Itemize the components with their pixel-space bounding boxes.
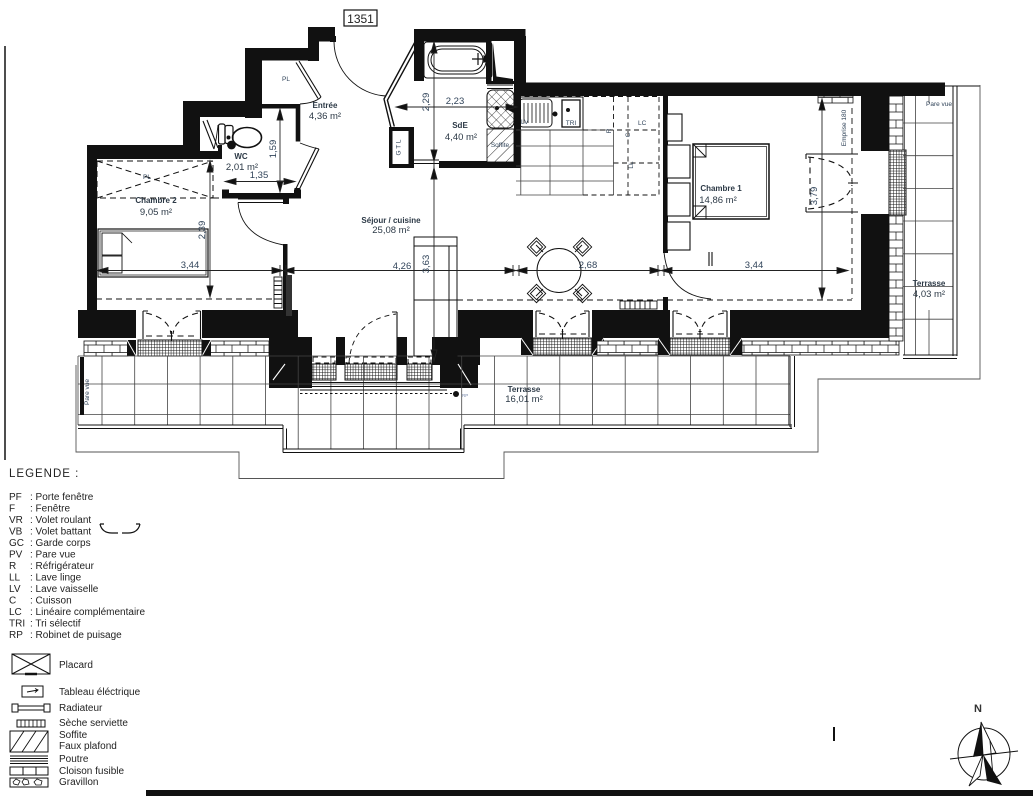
- svg-text:R: R: [9, 561, 16, 572]
- svg-text:Entrée: Entrée: [313, 101, 338, 110]
- svg-text:2,68: 2,68: [579, 260, 598, 271]
- svg-text:TRI: TRI: [566, 120, 577, 127]
- svg-text:PL: PL: [282, 76, 290, 83]
- svg-text:: Volet battant: : Volet battant: [30, 527, 91, 538]
- svg-text:4,36 m²: 4,36 m²: [309, 111, 341, 122]
- svg-text:: Lave vaisselle: : Lave vaisselle: [30, 584, 99, 595]
- svg-text:SdE: SdE: [452, 121, 468, 130]
- svg-text:PV: PV: [9, 550, 23, 561]
- svg-text:2,39: 2,39: [197, 221, 208, 240]
- svg-text:3,63: 3,63: [421, 255, 432, 274]
- svg-text:Faux plafond: Faux plafond: [59, 741, 117, 752]
- svg-text:: Cuisson: : Cuisson: [30, 596, 72, 607]
- svg-text:VR: VR: [9, 515, 23, 526]
- svg-text:WC: WC: [234, 152, 248, 161]
- svg-text:G T L: G T L: [396, 139, 403, 155]
- svg-text:: Lave linge: : Lave linge: [30, 573, 82, 584]
- svg-text:4,40 m²: 4,40 m²: [445, 132, 477, 143]
- svg-text:Terrasse: Terrasse: [508, 385, 541, 394]
- svg-text:LC: LC: [9, 607, 22, 618]
- svg-text:C: C: [9, 596, 16, 607]
- svg-text:PF: PF: [9, 492, 22, 503]
- svg-text:Chambre 1: Chambre 1: [700, 184, 742, 193]
- svg-text:LV: LV: [521, 119, 529, 126]
- svg-text:Soffite: Soffite: [59, 730, 88, 741]
- svg-text:3,44: 3,44: [181, 260, 200, 271]
- svg-text:3,44: 3,44: [745, 260, 764, 271]
- svg-text:LC: LC: [638, 120, 647, 127]
- svg-text:LV: LV: [9, 584, 21, 595]
- svg-text:Chambre 2: Chambre 2: [135, 196, 177, 205]
- svg-text:Gravillon: Gravillon: [59, 777, 98, 788]
- svg-text:3,79: 3,79: [809, 187, 820, 206]
- svg-text:14,86 m²: 14,86 m²: [699, 195, 737, 206]
- svg-text:LEGENDE :: LEGENDE :: [9, 468, 79, 480]
- svg-text:VB: VB: [9, 527, 23, 538]
- svg-text:Pare vue: Pare vue: [84, 379, 91, 405]
- svg-text:1,59: 1,59: [268, 140, 279, 159]
- svg-text:Cloison fusible: Cloison fusible: [59, 766, 124, 777]
- svg-text:Emprise 180: Emprise 180: [841, 109, 848, 146]
- svg-text:: Robinet de puisage: : Robinet de puisage: [30, 630, 122, 641]
- svg-text:RP: RP: [9, 630, 23, 641]
- svg-text:Pare vue: Pare vue: [926, 101, 952, 108]
- svg-text:Terrasse: Terrasse: [913, 279, 946, 288]
- svg-text:2,29: 2,29: [421, 93, 432, 112]
- svg-text:4,26: 4,26: [393, 261, 412, 272]
- svg-text:: Pare vue: : Pare vue: [30, 550, 76, 561]
- svg-text:Placard: Placard: [59, 660, 93, 671]
- svg-text:: Linéaire complémentaire: : Linéaire complémentaire: [30, 607, 145, 618]
- svg-text:4,03 m²: 4,03 m²: [913, 289, 945, 300]
- svg-text:LL: LL: [9, 573, 21, 584]
- svg-text:N: N: [974, 703, 982, 715]
- svg-text:Sèche serviette: Sèche serviette: [59, 718, 128, 729]
- svg-text:C: C: [625, 132, 632, 137]
- svg-text:: Garde corps: : Garde corps: [30, 538, 91, 549]
- svg-text:Poutre: Poutre: [59, 754, 89, 765]
- svg-text:Radiateur: Radiateur: [59, 703, 103, 714]
- svg-text:Séjour / cuisine: Séjour / cuisine: [361, 216, 421, 225]
- svg-text:PL: PL: [143, 174, 151, 181]
- svg-text:1351: 1351: [347, 12, 374, 26]
- svg-text:Soffite: Soffite: [491, 142, 510, 149]
- svg-text:LL: LL: [628, 161, 635, 169]
- svg-text:: Volet roulant: : Volet roulant: [30, 515, 91, 526]
- svg-text:: Réfrigérateur: : Réfrigérateur: [30, 561, 95, 572]
- svg-text:GC: GC: [9, 538, 24, 549]
- svg-text:16,01 m²: 16,01 m²: [505, 394, 543, 405]
- svg-text:9,05 m²: 9,05 m²: [140, 207, 172, 218]
- svg-text:: Porte fenêtre: : Porte fenêtre: [30, 492, 94, 503]
- svg-text:RP: RP: [462, 393, 468, 398]
- svg-text:: Tri sélectif: : Tri sélectif: [30, 619, 81, 630]
- svg-text:Tableau éléctrique: Tableau éléctrique: [59, 687, 141, 698]
- svg-text:2,23: 2,23: [446, 96, 465, 107]
- svg-text:TRI: TRI: [9, 619, 25, 630]
- svg-text:F: F: [9, 504, 15, 515]
- svg-text:R: R: [606, 128, 613, 133]
- svg-text:: Fenêtre: : Fenêtre: [30, 504, 70, 515]
- svg-text:2,01 m²: 2,01 m²: [226, 162, 258, 173]
- svg-text:25,08 m²: 25,08 m²: [372, 225, 410, 236]
